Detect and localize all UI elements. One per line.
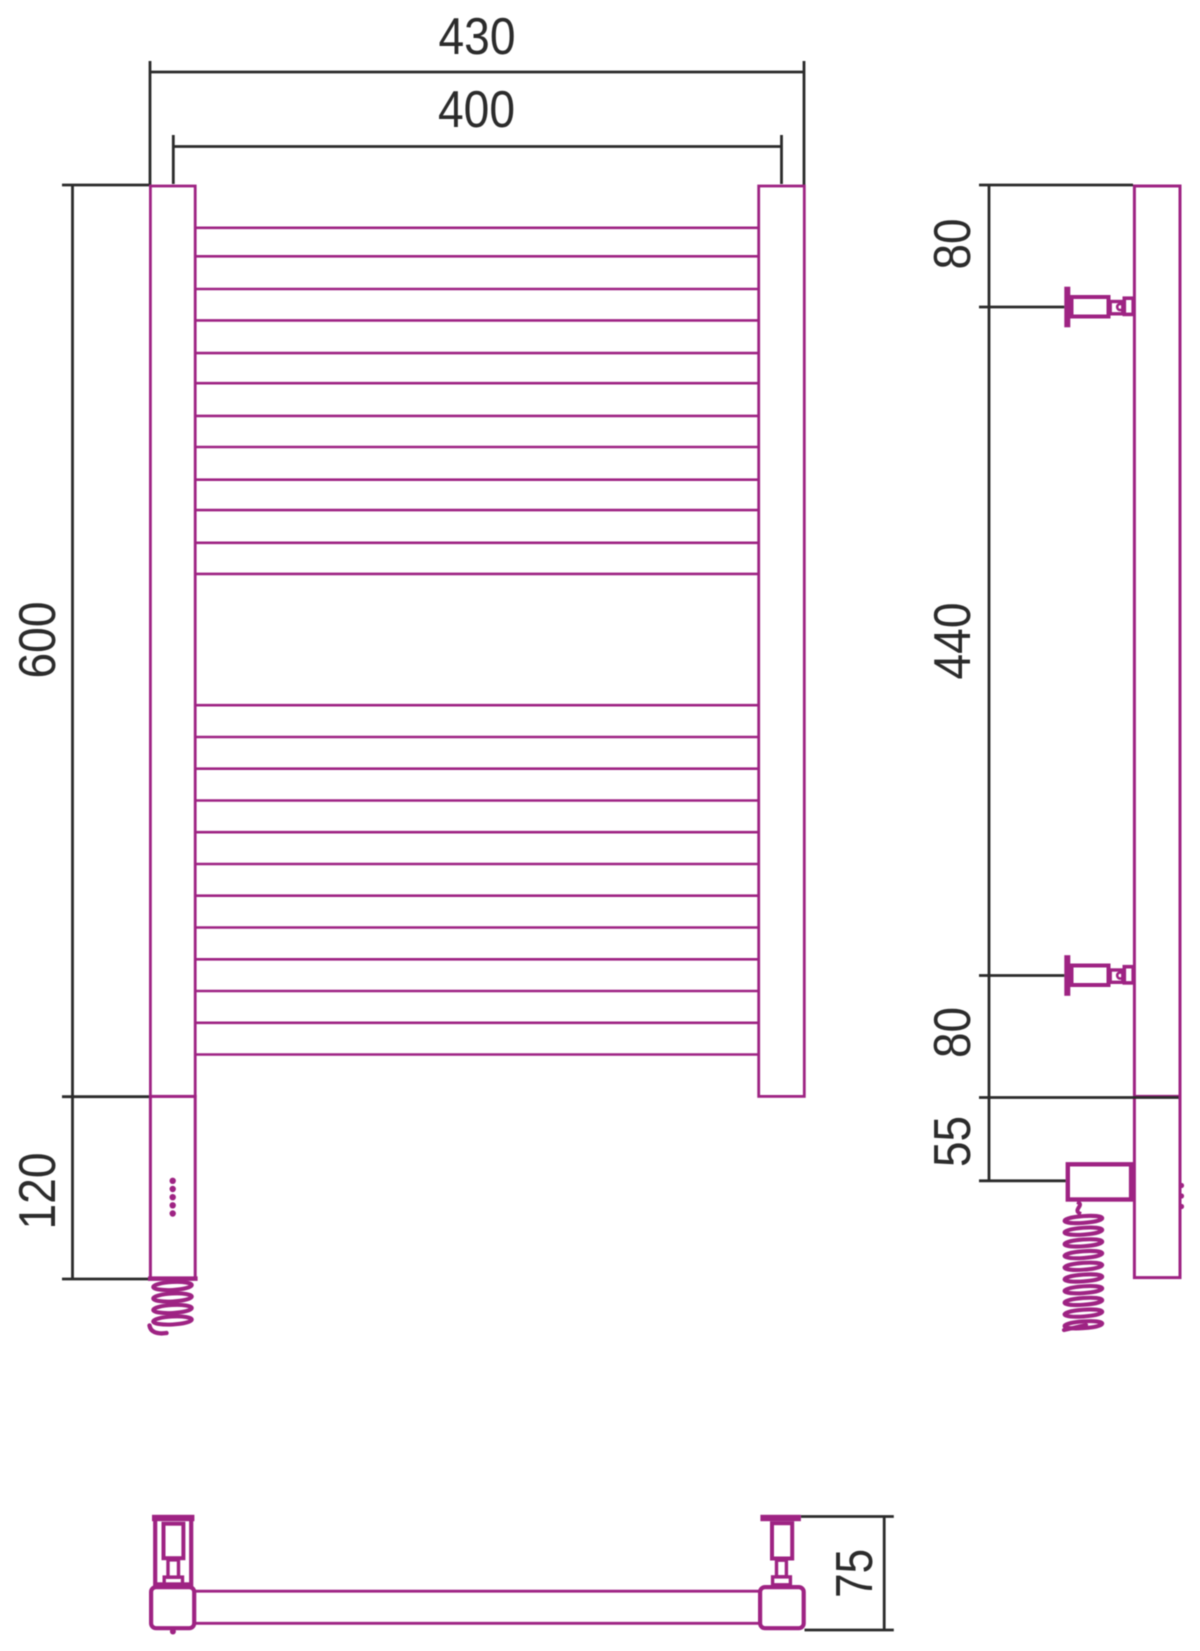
svg-text:80: 80 [924,219,982,270]
svg-text:75: 75 [826,1549,884,1598]
svg-text:55: 55 [924,1116,982,1167]
svg-text:80: 80 [924,1007,982,1058]
svg-text:430: 430 [439,8,516,66]
svg-text:440: 440 [924,603,982,680]
svg-text:400: 400 [438,81,515,139]
svg-text:120: 120 [9,1153,67,1230]
svg-text:600: 600 [9,602,67,679]
